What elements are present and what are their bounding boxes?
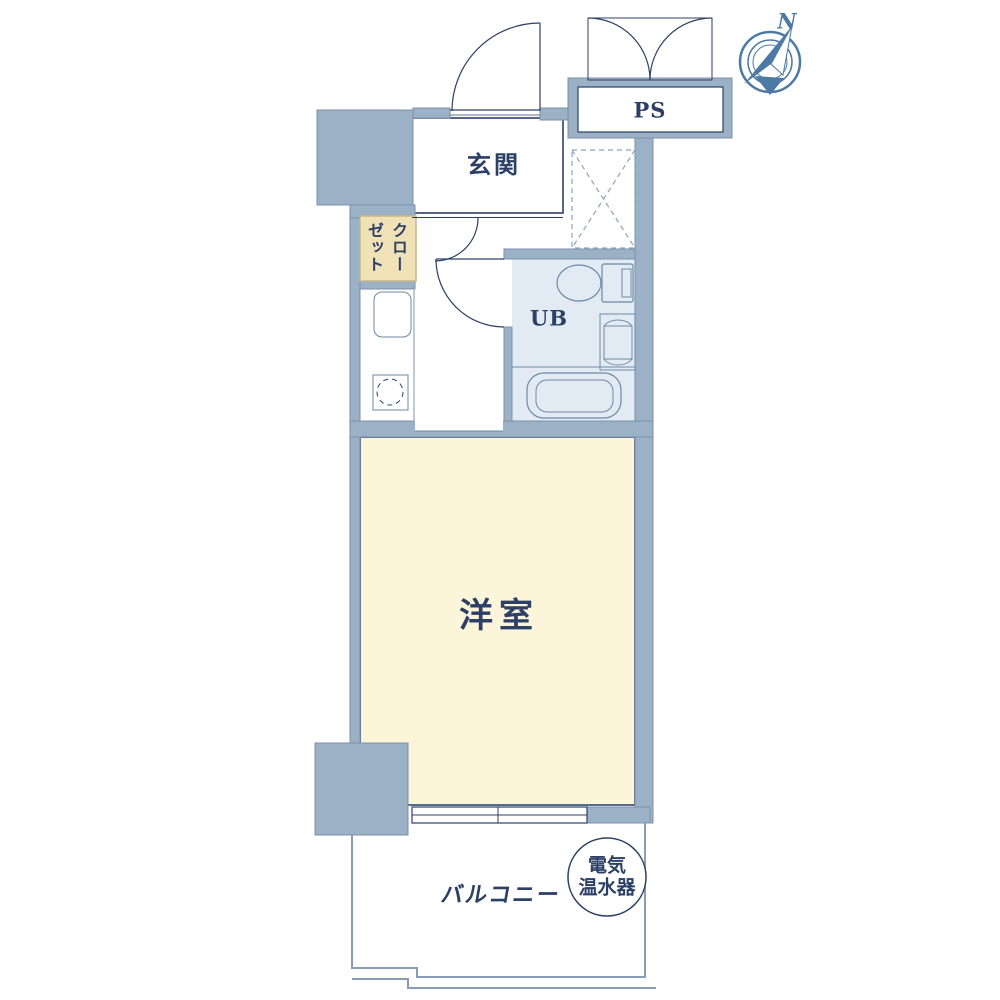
bath-door-arc <box>436 259 504 327</box>
kitchen <box>373 289 414 421</box>
wall-pillar-bottom-left <box>315 743 408 835</box>
western-room-label: 洋室 <box>459 599 539 633</box>
burner-icon <box>377 379 403 405</box>
wall-entrance-left <box>413 108 450 118</box>
balcony-window <box>412 807 587 823</box>
kitchen-sink-icon <box>374 292 411 337</box>
compass-icon <box>740 26 800 95</box>
unit-bath-label: UB <box>530 308 568 329</box>
hall-door-arc <box>435 218 478 261</box>
balcony-parapet-outer <box>352 979 656 988</box>
entrance-label: 玄関 <box>467 153 521 177</box>
ps-door-arc-right <box>650 18 712 80</box>
closet-label-col-left: ゼット <box>366 222 382 273</box>
ps-label: PS <box>634 100 667 121</box>
wall-right <box>635 138 653 823</box>
balcony-label: バルコニー <box>439 884 562 906</box>
ps-doors-outline <box>588 18 712 80</box>
closet-label-col-right: クロー <box>390 222 406 273</box>
ps-door-arc-left <box>588 18 650 80</box>
floor-plan: 玄関 PS クロー ゼット UB 洋室 バルコニー 電気 温水器 N <box>0 0 1000 1000</box>
wall-top-left-block <box>317 110 413 205</box>
wall-left <box>350 218 360 745</box>
entrance-door-arc <box>452 23 540 111</box>
wall-window-right-block <box>587 807 650 823</box>
wall-ub-left <box>504 327 512 421</box>
wall-entrance-right <box>540 108 568 120</box>
unit-bath-room <box>512 259 635 421</box>
water-heater-label-line2: 温水器 <box>578 879 635 898</box>
wall-ub-top <box>504 249 635 259</box>
meter-box-icon <box>572 150 635 248</box>
corridor-opening <box>415 420 503 431</box>
compass-north-label: N <box>777 9 796 34</box>
wall-below-closet <box>360 281 415 289</box>
water-heater-label-line1: 電気 <box>588 857 626 876</box>
